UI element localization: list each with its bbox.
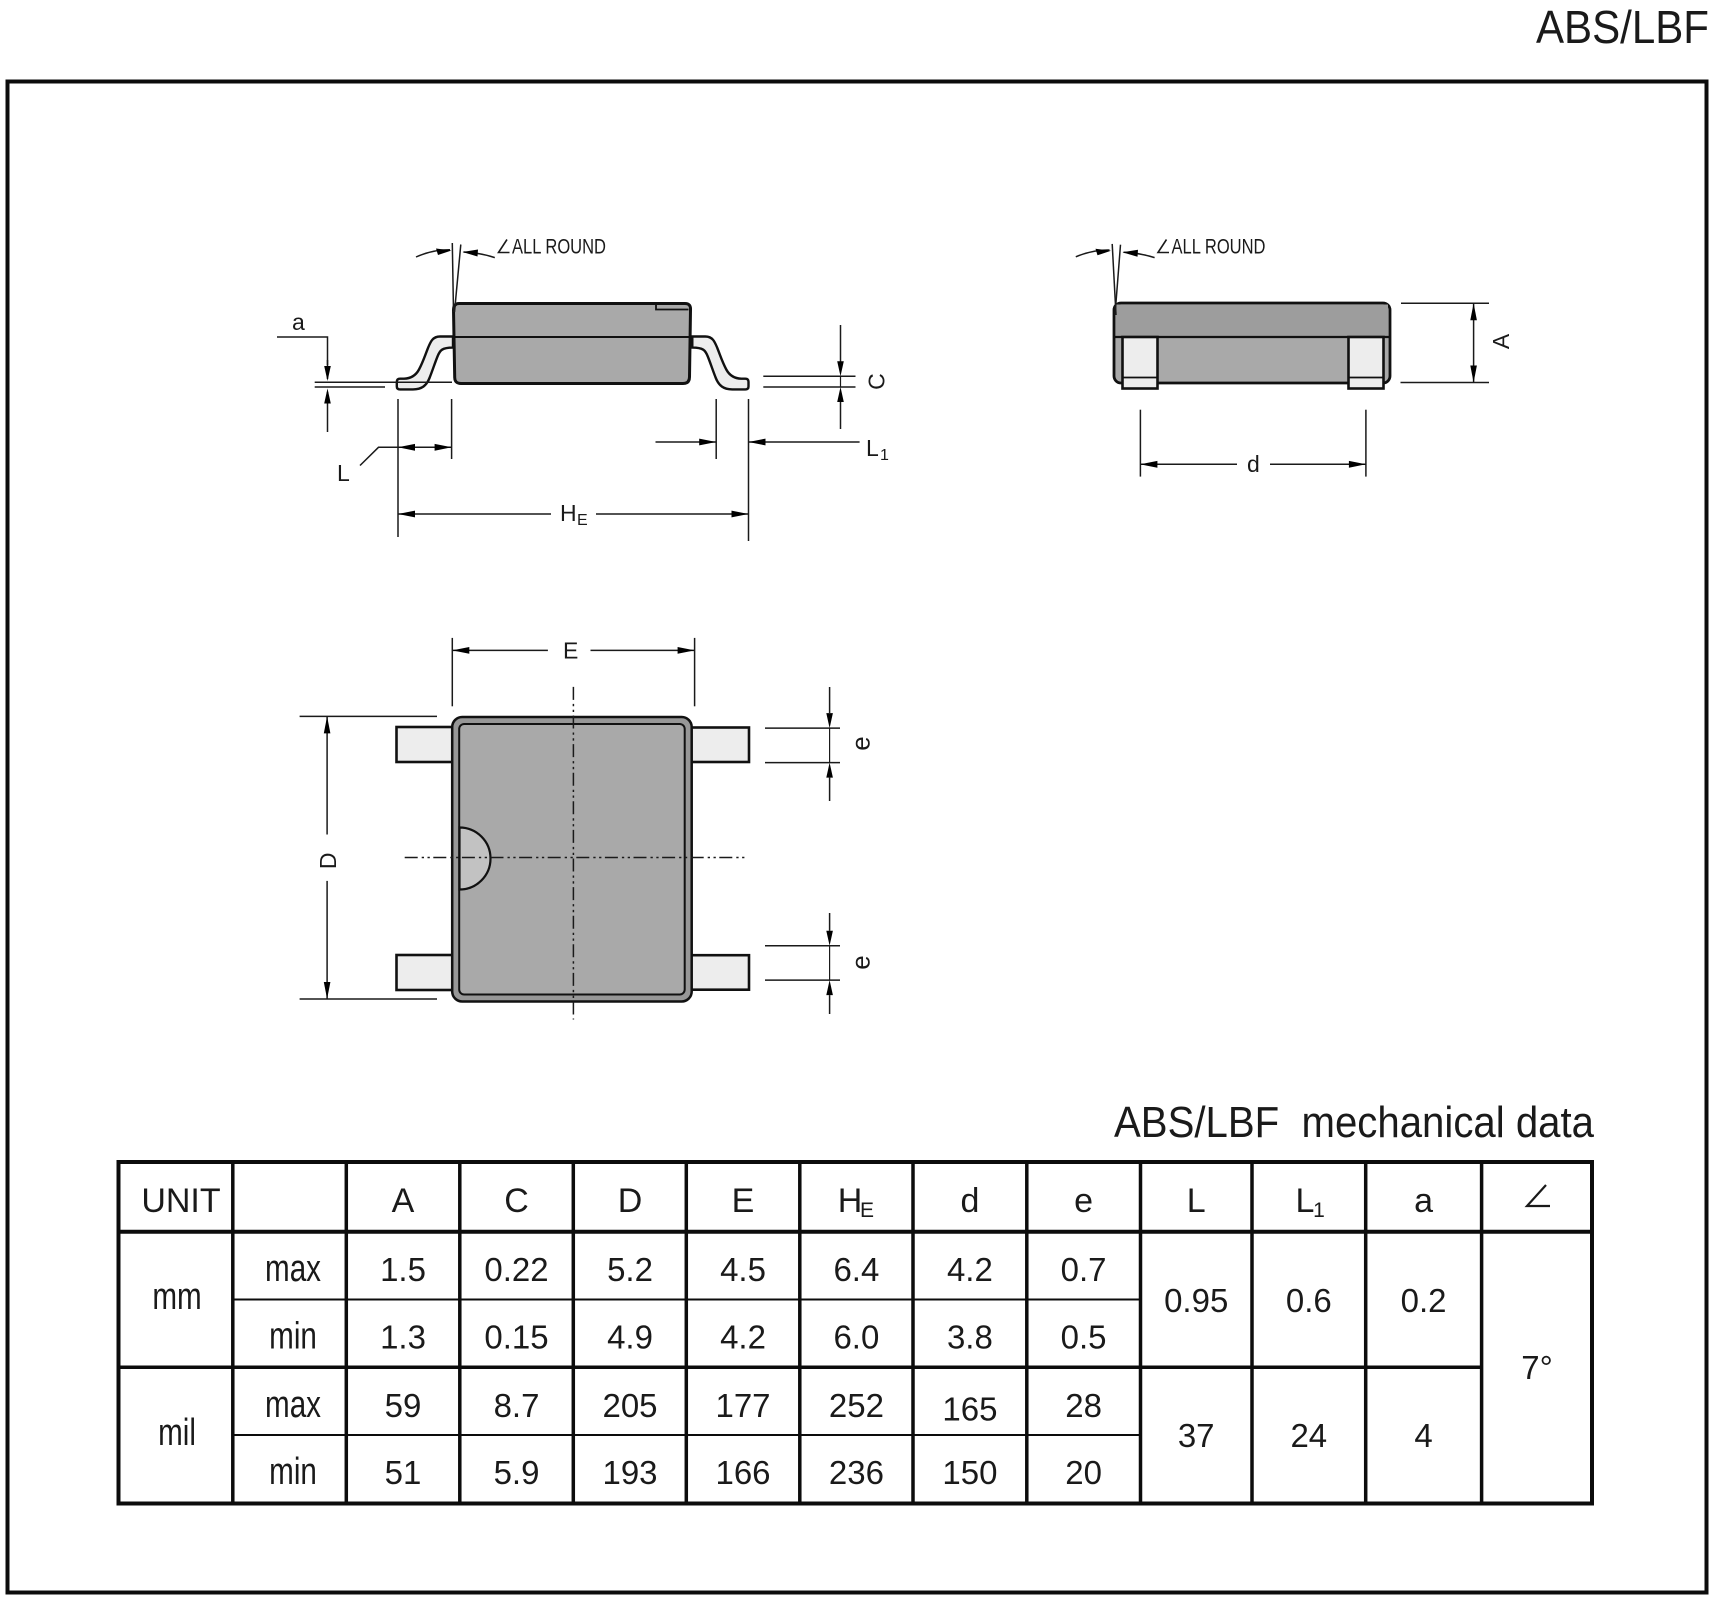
svg-text:8.7: 8.7 xyxy=(494,1387,540,1424)
svg-text:ALL ROUND: ALL ROUND xyxy=(1172,235,1266,259)
svg-text:59: 59 xyxy=(385,1387,422,1424)
svg-text:H: H xyxy=(560,500,577,526)
svg-text:4.5: 4.5 xyxy=(720,1251,766,1288)
svg-text:205: 205 xyxy=(602,1387,657,1424)
svg-text:ALL ROUND: ALL ROUND xyxy=(512,235,606,259)
svg-text:236: 236 xyxy=(829,1454,884,1491)
svg-text:mm: mm xyxy=(152,1276,201,1318)
svg-text:177: 177 xyxy=(715,1387,770,1424)
svg-text:d: d xyxy=(1247,451,1260,477)
svg-text:min: min xyxy=(269,1315,317,1357)
svg-text:4.2: 4.2 xyxy=(947,1251,993,1288)
svg-text:L: L xyxy=(1187,1182,1206,1220)
svg-text:6.0: 6.0 xyxy=(833,1319,879,1356)
svg-text:C: C xyxy=(864,373,890,390)
svg-text:e: e xyxy=(846,736,876,750)
svg-text:a: a xyxy=(1414,1182,1433,1220)
svg-text:0.5: 0.5 xyxy=(1061,1319,1107,1356)
svg-text:E: E xyxy=(860,1199,874,1222)
svg-text:min: min xyxy=(269,1451,317,1493)
svg-text:C: C xyxy=(504,1182,529,1220)
svg-text:max: max xyxy=(265,1384,321,1426)
svg-text:max: max xyxy=(265,1248,321,1290)
svg-text:1: 1 xyxy=(880,447,889,464)
svg-text:d: d xyxy=(960,1182,979,1220)
svg-text:37: 37 xyxy=(1178,1417,1215,1454)
svg-text:ABS/LBF mechanical data: ABS/LBF mechanical data xyxy=(1114,1098,1594,1147)
svg-text:E: E xyxy=(732,1182,755,1220)
svg-text:L: L xyxy=(866,435,879,461)
svg-text:5.2: 5.2 xyxy=(607,1251,653,1288)
svg-text:7°: 7° xyxy=(1521,1349,1553,1386)
svg-text:H: H xyxy=(838,1182,863,1220)
svg-text:A: A xyxy=(1488,333,1514,349)
svg-text:e: e xyxy=(1074,1182,1093,1220)
svg-text:5.9: 5.9 xyxy=(494,1454,540,1491)
svg-text:28: 28 xyxy=(1065,1387,1102,1424)
svg-text:1: 1 xyxy=(1313,1199,1325,1222)
svg-text:150: 150 xyxy=(942,1454,997,1491)
svg-text:1.5: 1.5 xyxy=(380,1251,426,1288)
svg-text:0.7: 0.7 xyxy=(1061,1251,1107,1288)
svg-text:3.8: 3.8 xyxy=(947,1319,993,1356)
svg-text:165: 165 xyxy=(942,1391,997,1428)
svg-text:1.3: 1.3 xyxy=(380,1319,426,1356)
svg-text:D: D xyxy=(315,852,341,869)
svg-text:0.95: 0.95 xyxy=(1164,1282,1228,1319)
svg-text:51: 51 xyxy=(385,1454,422,1491)
svg-text:0.22: 0.22 xyxy=(484,1251,548,1288)
svg-text:4.2: 4.2 xyxy=(720,1319,766,1356)
svg-text:UNIT: UNIT xyxy=(141,1182,220,1220)
svg-text:252: 252 xyxy=(829,1387,884,1424)
svg-text:0.15: 0.15 xyxy=(484,1319,548,1356)
svg-text:e: e xyxy=(846,955,876,969)
svg-text:a: a xyxy=(292,309,305,335)
svg-text:0.6: 0.6 xyxy=(1286,1282,1332,1319)
svg-text:24: 24 xyxy=(1290,1417,1327,1454)
svg-text:E: E xyxy=(577,512,588,529)
svg-text:4.9: 4.9 xyxy=(607,1319,653,1356)
svg-text:193: 193 xyxy=(602,1454,657,1491)
svg-text:6.4: 6.4 xyxy=(833,1251,879,1288)
svg-text:E: E xyxy=(563,638,578,664)
svg-text:A: A xyxy=(392,1182,415,1220)
svg-text:0.2: 0.2 xyxy=(1401,1282,1447,1319)
svg-text:166: 166 xyxy=(715,1454,770,1491)
svg-text:20: 20 xyxy=(1065,1454,1102,1491)
svg-text:mil: mil xyxy=(158,1412,196,1454)
svg-text:4: 4 xyxy=(1414,1417,1432,1454)
svg-text:L: L xyxy=(337,460,350,486)
svg-text:ABS/LBF: ABS/LBF xyxy=(1536,1,1709,53)
svg-text:L: L xyxy=(1296,1182,1315,1220)
svg-text:D: D xyxy=(618,1182,643,1220)
